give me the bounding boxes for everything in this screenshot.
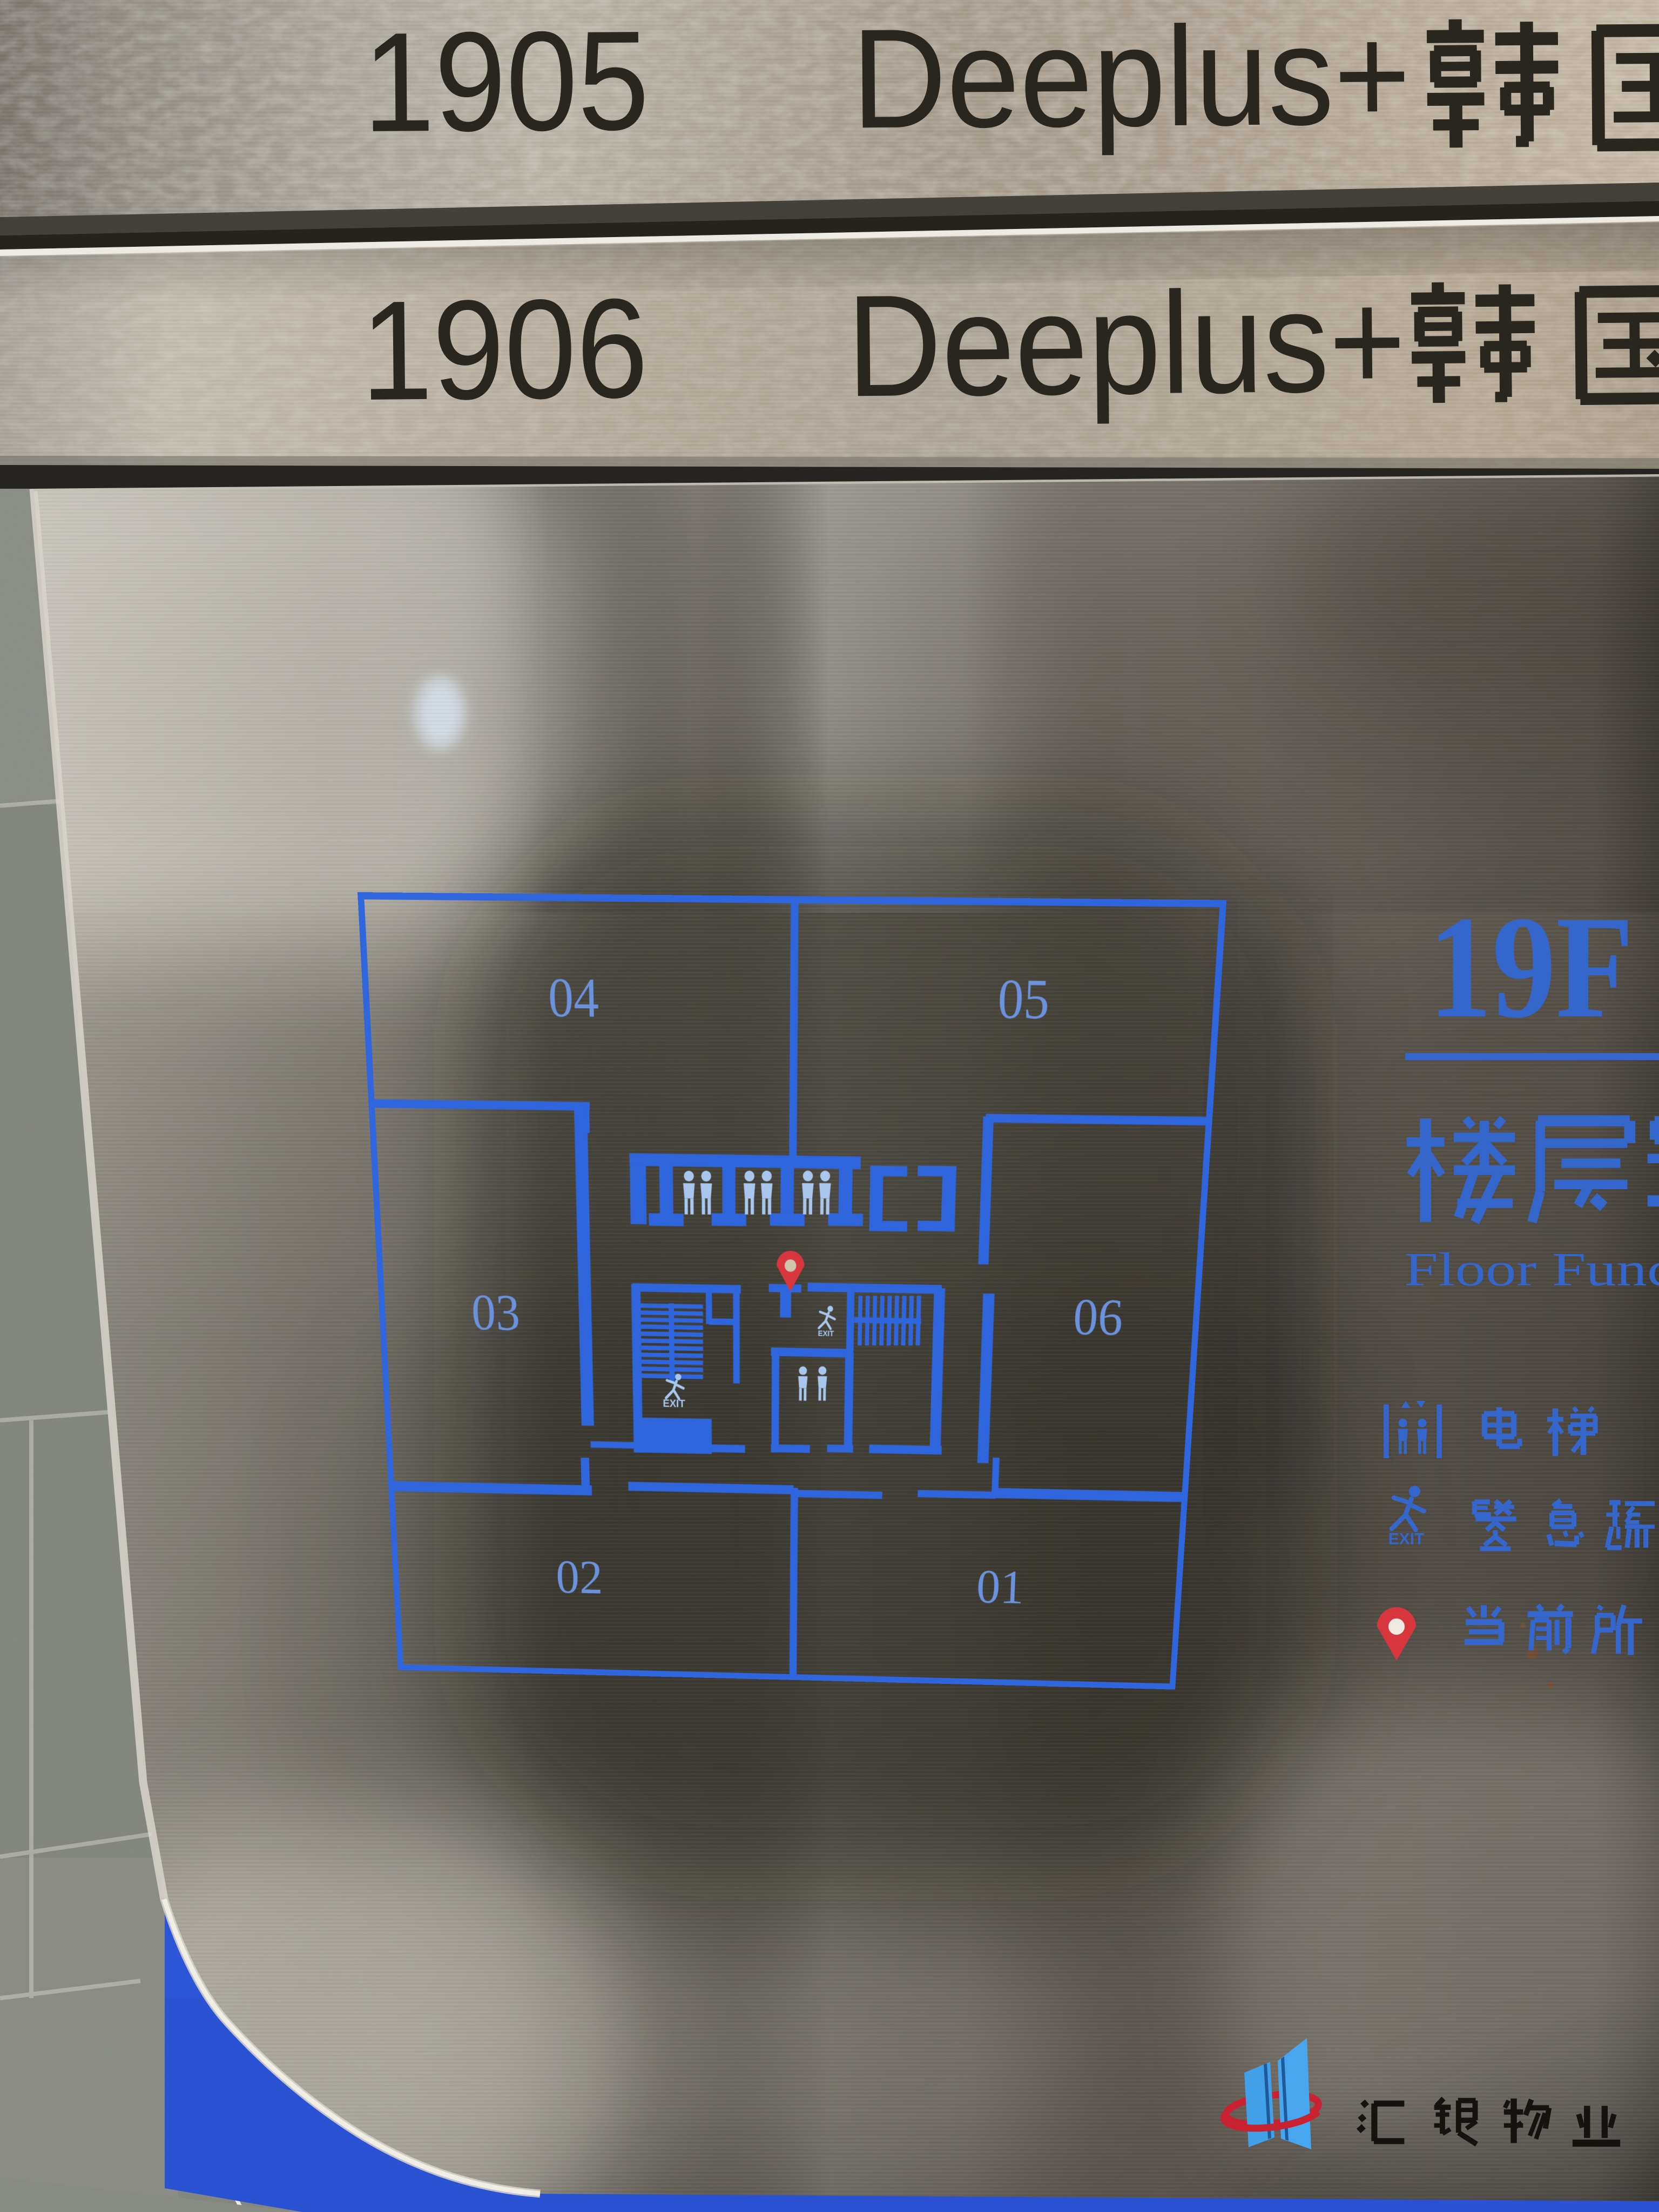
svg-text:1906: 1906 xyxy=(360,269,649,430)
svg-text:Floor Func: Floor Func xyxy=(1404,1244,1659,1296)
svg-text:01: 01 xyxy=(976,1560,1026,1614)
svg-text:02: 02 xyxy=(555,1550,603,1604)
svg-text:05: 05 xyxy=(997,968,1051,1031)
svg-text:EXIT: EXIT xyxy=(818,1330,834,1339)
svg-text:1905: 1905 xyxy=(362,1,650,161)
svg-text:03: 03 xyxy=(470,1284,521,1341)
svg-text:06: 06 xyxy=(1072,1288,1124,1346)
svg-text:Deeplus+: Deeplus+ xyxy=(851,0,1411,159)
svg-text:EXIT: EXIT xyxy=(1388,1530,1425,1548)
svg-text:19F: 19F xyxy=(1428,886,1634,1048)
svg-text:04: 04 xyxy=(548,966,599,1029)
svg-text:EXIT: EXIT xyxy=(663,1398,685,1410)
svg-text:Deeplus+: Deeplus+ xyxy=(846,260,1407,428)
